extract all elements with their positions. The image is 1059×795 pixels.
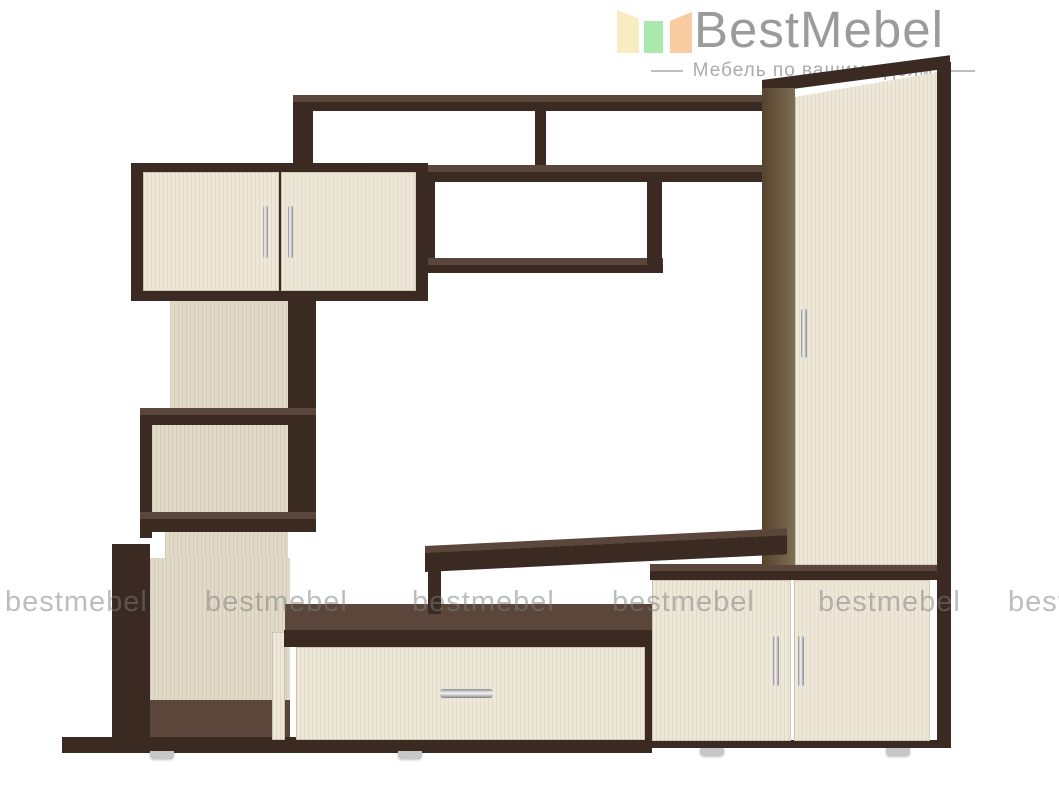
watermark-text: bestmebel	[5, 586, 148, 619]
brand-name: BestMebel	[694, 2, 944, 58]
drawer-handle	[440, 689, 493, 698]
brand-logo: BestMebel Мебель по вашим идеям	[0, 0, 1059, 90]
wardrobe-handle	[801, 309, 807, 358]
shelf-box-bottom-board	[422, 258, 663, 273]
base-cabinet-bottom	[650, 740, 942, 748]
foot-1	[150, 751, 174, 759]
foot-4	[886, 748, 910, 756]
open-cube-top-board	[140, 408, 316, 425]
top-shelf-divider	[535, 110, 546, 167]
top-shelf-left-post	[293, 110, 313, 167]
watermark-text: bestmebel	[205, 586, 348, 619]
wall-cabinet-handle-left	[263, 206, 268, 258]
base-cabinet-top	[650, 564, 942, 580]
top-shelf-lower-board	[418, 165, 785, 182]
watermark-text: bestmebel	[412, 586, 555, 619]
logo-bar-right	[670, 12, 692, 53]
bottom-left-side-wall	[112, 544, 150, 744]
product-image: BestMebel Мебель по вашим идеям	[0, 0, 1059, 795]
logo-bar-left	[617, 10, 639, 53]
shelf-box-right-post	[647, 181, 662, 273]
wall-cabinet-handle-right	[288, 206, 293, 258]
tv-stand-right-edge	[645, 630, 652, 742]
tagline-rule-left	[651, 70, 683, 72]
wall-cabinet-door-left	[143, 172, 279, 291]
wall-cabinet-door-right	[281, 172, 416, 291]
left-column-back-panel-upper	[170, 300, 290, 412]
logo-bar-middle	[644, 21, 663, 53]
furniture-panels-icon	[617, 8, 695, 56]
open-cube-bottom-board	[140, 512, 316, 532]
tv-stand-top-edge	[284, 630, 652, 647]
wardrobe-right-edge	[937, 62, 951, 748]
watermark-text: bestmebel	[612, 586, 755, 619]
foot-3	[700, 748, 724, 756]
tv-stand-side-panel	[272, 632, 285, 740]
foot-2	[398, 751, 422, 759]
wardrobe-door	[795, 72, 938, 565]
top-shelf-upper-board	[293, 95, 778, 111]
wardrobe-side-panel	[762, 88, 795, 565]
watermark-text: bestmebel	[818, 586, 961, 619]
bottom-left-floor	[150, 700, 290, 738]
open-cube-back-panel	[152, 424, 288, 516]
bottom-left-compartment-back	[150, 558, 290, 704]
base-cabinet-handle-right	[798, 636, 804, 686]
watermark-text: bestmebel	[1008, 586, 1059, 619]
base-cabinet-handle-left	[773, 636, 779, 686]
